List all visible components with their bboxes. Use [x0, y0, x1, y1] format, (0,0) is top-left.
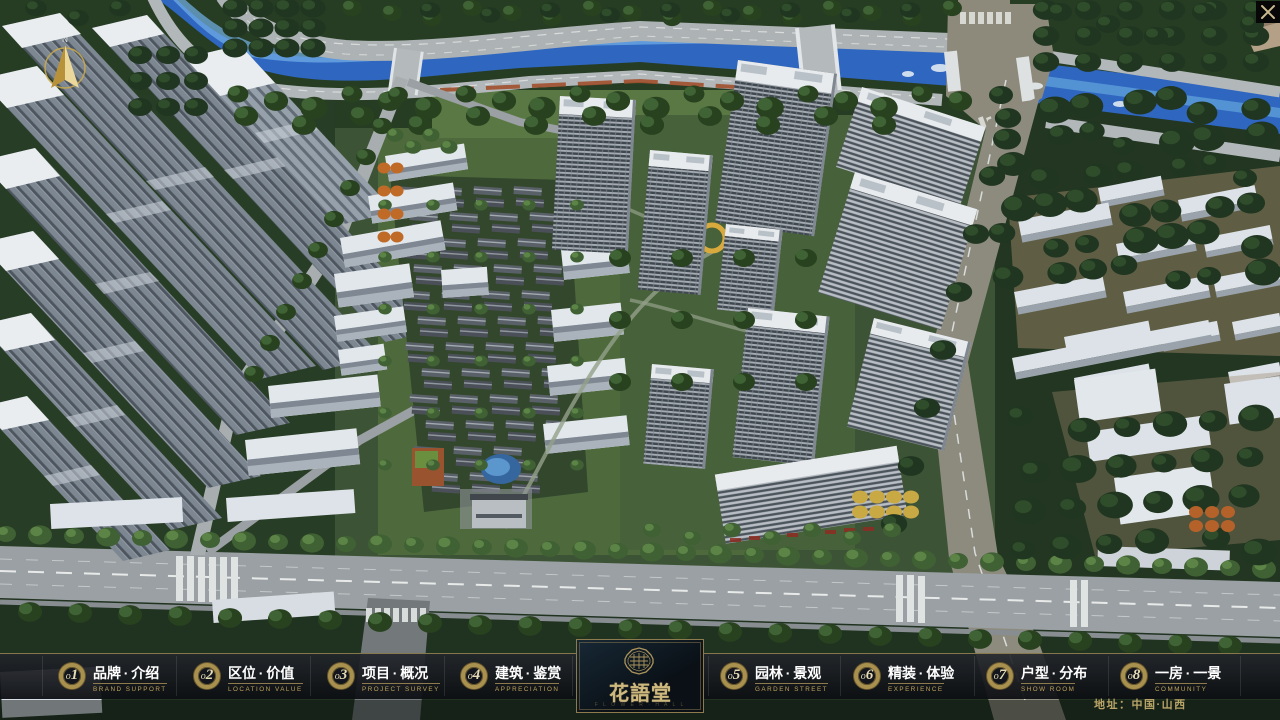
svg-text:N: N [62, 35, 68, 44]
